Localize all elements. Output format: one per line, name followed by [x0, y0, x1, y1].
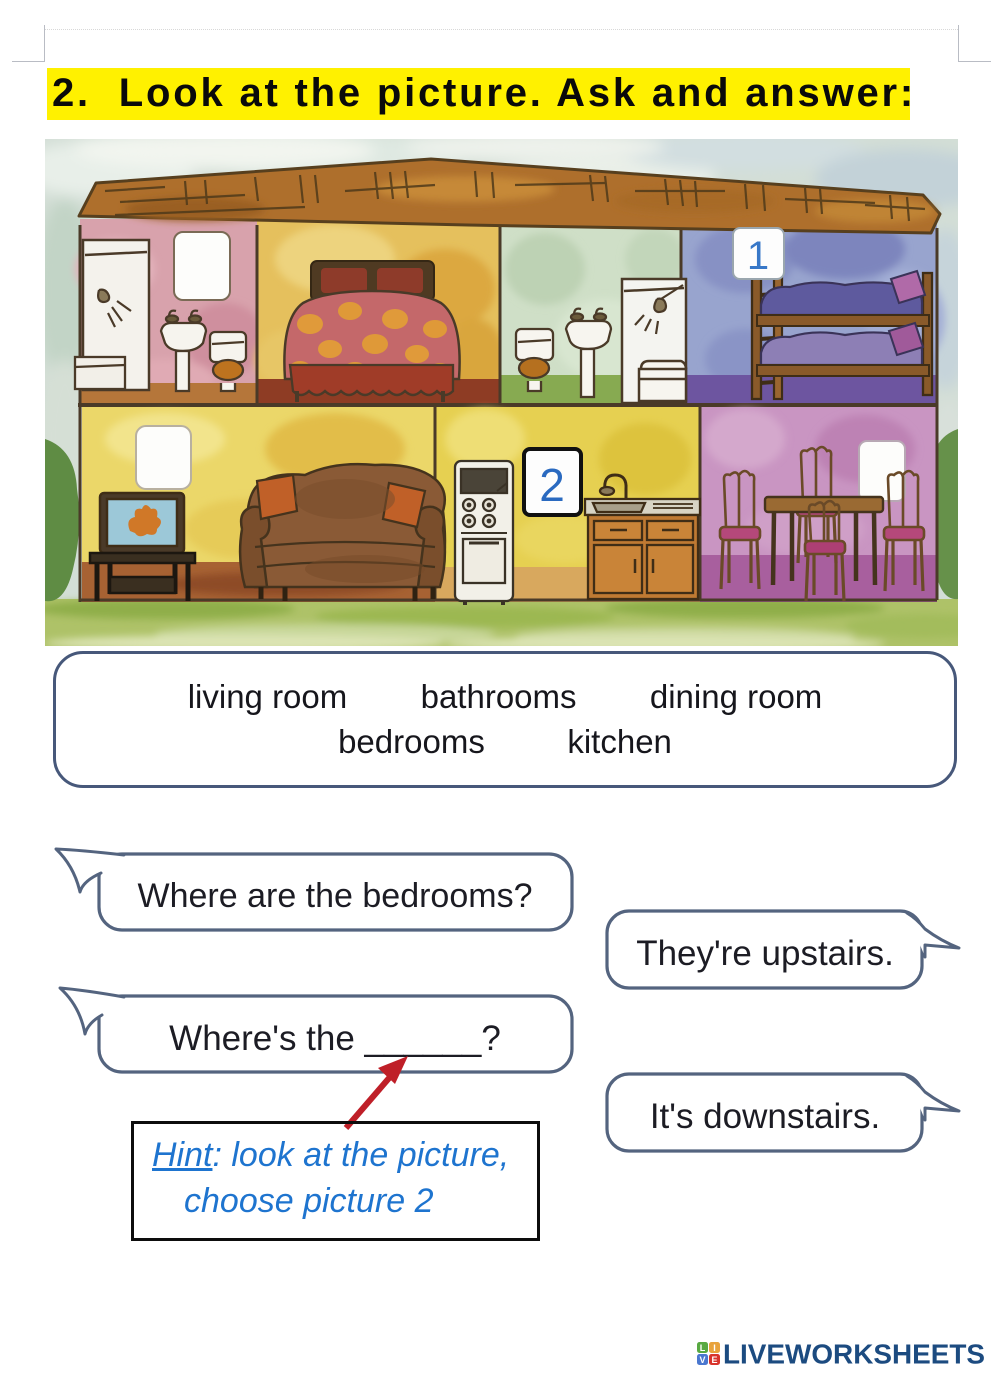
svg-text:V: V	[699, 1355, 705, 1365]
svg-text:Where are the bedrooms?: Where are the bedrooms?	[138, 877, 533, 915]
svg-text:They're upstairs.: They're upstairs.	[636, 934, 894, 973]
svg-text:2: 2	[539, 459, 565, 511]
svg-text:1: 1	[747, 234, 769, 278]
svg-text:I: I	[713, 1343, 716, 1353]
svg-text:It's downstairs.: It's downstairs.	[650, 1097, 880, 1136]
svg-text:LIVEWORKSHEETS: LIVEWORKSHEETS	[723, 1342, 985, 1367]
svg-text:L: L	[700, 1343, 706, 1353]
svg-text:E: E	[711, 1355, 717, 1365]
